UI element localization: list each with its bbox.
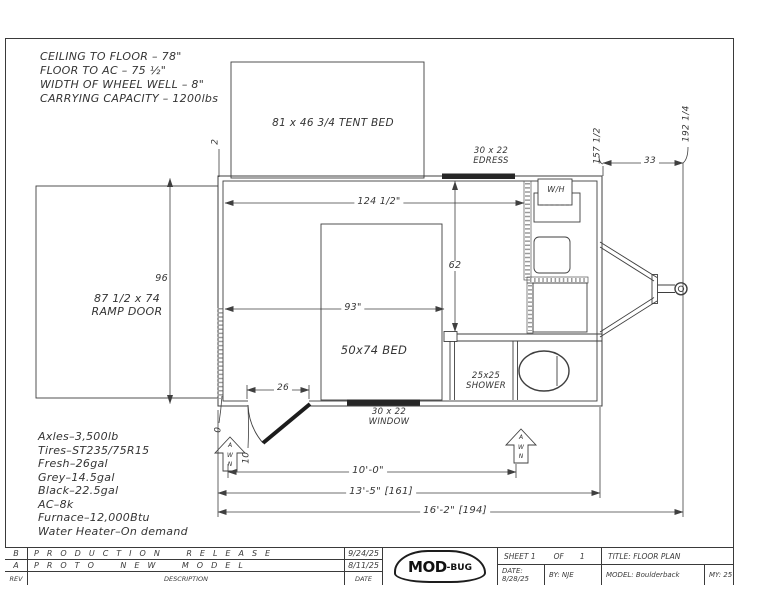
ramp-door-label: 87 1/2 x 74 RAMP DOOR — [92, 292, 163, 318]
logo-main-text: MOD — [408, 558, 447, 576]
note-line: CEILING TO FLOOR – 78" — [40, 50, 218, 64]
vanity-outline — [534, 237, 570, 273]
revision-rev-a: A — [5, 560, 28, 572]
dim-door-offset-b: 10 — [242, 450, 251, 466]
title-cell: TITLE: FLOOR PLAN — [602, 548, 733, 565]
toilet-outline — [519, 351, 569, 391]
dim-box-length: 13'-5" [161] — [346, 487, 416, 498]
note-line: FLOOR TO AC – 75 ½" — [40, 64, 218, 78]
dim-tongue-length: 33 — [641, 157, 659, 166]
general-notes: CEILING TO FLOOR – 78" FLOOR TO AC – 75 … — [40, 50, 218, 106]
dim-interior-length: 124 1/2" — [354, 197, 403, 207]
awning-marker-label: A W N — [222, 441, 238, 470]
sheet-of-value: 1 — [580, 552, 585, 561]
dim-door-opening: 26 — [274, 384, 292, 393]
revision-col-rev: REV — [5, 572, 28, 585]
dim-body-length: 157 1/2 — [593, 121, 602, 171]
spec-line: AC–8k — [38, 498, 188, 512]
spec-notes: Axles–3,500lb Tires–ST235/75R15 Fresh–26… — [38, 430, 188, 538]
dim-body-width: 96 — [146, 274, 168, 284]
title-block: B PRODUCTION RELEASE 9/24/25 A PROTO NEW… — [5, 547, 733, 585]
sheet-of-label: OF — [554, 552, 564, 561]
sheet-cell: SHEET 1 OF 1 — [498, 548, 602, 565]
ramp-name: RAMP DOOR — [92, 305, 163, 318]
date-cell: DATE: 8/28/25 — [498, 565, 545, 585]
revision-desc-a: PROTO NEW MODEL — [28, 560, 345, 572]
window-name: WINDOW — [369, 417, 410, 427]
spec-line: Black–22.5gal — [38, 484, 188, 498]
bathroom-walls — [444, 181, 602, 400]
egress-window-bar — [442, 174, 515, 180]
shower-name: SHOWER — [466, 381, 506, 391]
spec-line: Fresh–26gal — [38, 457, 188, 471]
dim-overall-length: 16'-2" [194] — [420, 506, 490, 517]
logo-cell: MOD-BUG — [383, 548, 498, 585]
shower-size: 25x25 — [466, 371, 506, 381]
dim-total-length: 192 1/4 — [682, 99, 691, 149]
spec-line: Water Heater–On demand — [38, 525, 188, 539]
spec-line: Furnace–12,000Btu — [38, 511, 188, 525]
tent-bed-label: 81 x 46 3/4 TENT BED — [272, 118, 394, 129]
awning-marker-label: A W N — [513, 433, 529, 462]
entry-window-label: 30 x 22 WINDOW — [369, 407, 410, 427]
dim-front-to-bath: 62 — [446, 261, 465, 271]
dim-bed-wall: 93" — [341, 303, 364, 313]
dim-wall-thickness: 2 — [211, 134, 220, 150]
mod-bug-logo: MOD-BUG — [394, 550, 486, 583]
revision-rev-b: B — [5, 548, 28, 560]
egress-name: EDRESS — [473, 156, 508, 166]
shower-label: 25x25 SHOWER — [466, 371, 506, 391]
spec-line: Tires–ST235/75R15 — [38, 444, 188, 458]
model-cell: MODEL: Boulderback — [602, 565, 705, 585]
ramp-size: 87 1/2 x 74 — [92, 292, 163, 305]
revision-col-description: DESCRIPTION — [28, 572, 345, 585]
water-heater-label: W/H — [547, 186, 565, 194]
revision-date-a: 8/11/25 — [345, 560, 383, 572]
trailer-walls — [218, 176, 602, 406]
tongue-aframe — [600, 242, 687, 337]
revision-date-b: 9/24/25 — [345, 548, 383, 560]
dim-door-offset-a: 0 — [214, 422, 223, 438]
logo-sub-text: -BUG — [447, 563, 472, 573]
egress-window-label: 30 x 22 EDRESS — [473, 146, 508, 166]
model-year-cell: MY: 25 — [705, 565, 733, 585]
egress-size: 30 x 22 — [473, 146, 508, 156]
sheet-label: SHEET 1 — [504, 552, 536, 561]
note-line: CARRYING CAPACITY – 1200lbs — [40, 92, 218, 106]
window-size: 30 x 22 — [369, 407, 410, 417]
note-line: WIDTH OF WHEEL WELL – 8" — [40, 78, 218, 92]
drawing-sheet: { "top_notes": [ "CEILING TO FLOOR – 78\… — [0, 0, 768, 589]
by-cell: BY: NJE — [545, 565, 602, 585]
entry-window-bar — [347, 400, 420, 406]
dim-awning-length: 10'-0" — [349, 466, 387, 477]
bed-outline — [321, 224, 442, 400]
spec-line: Grey–14.5gal — [38, 471, 188, 485]
bed-label: 50x74 BED — [341, 344, 407, 356]
cabinet-outline — [533, 283, 587, 332]
spec-line: Axles–3,500lb — [38, 430, 188, 444]
revision-desc-b: PRODUCTION RELEASE — [28, 548, 345, 560]
revision-col-date: DATE — [345, 572, 383, 585]
